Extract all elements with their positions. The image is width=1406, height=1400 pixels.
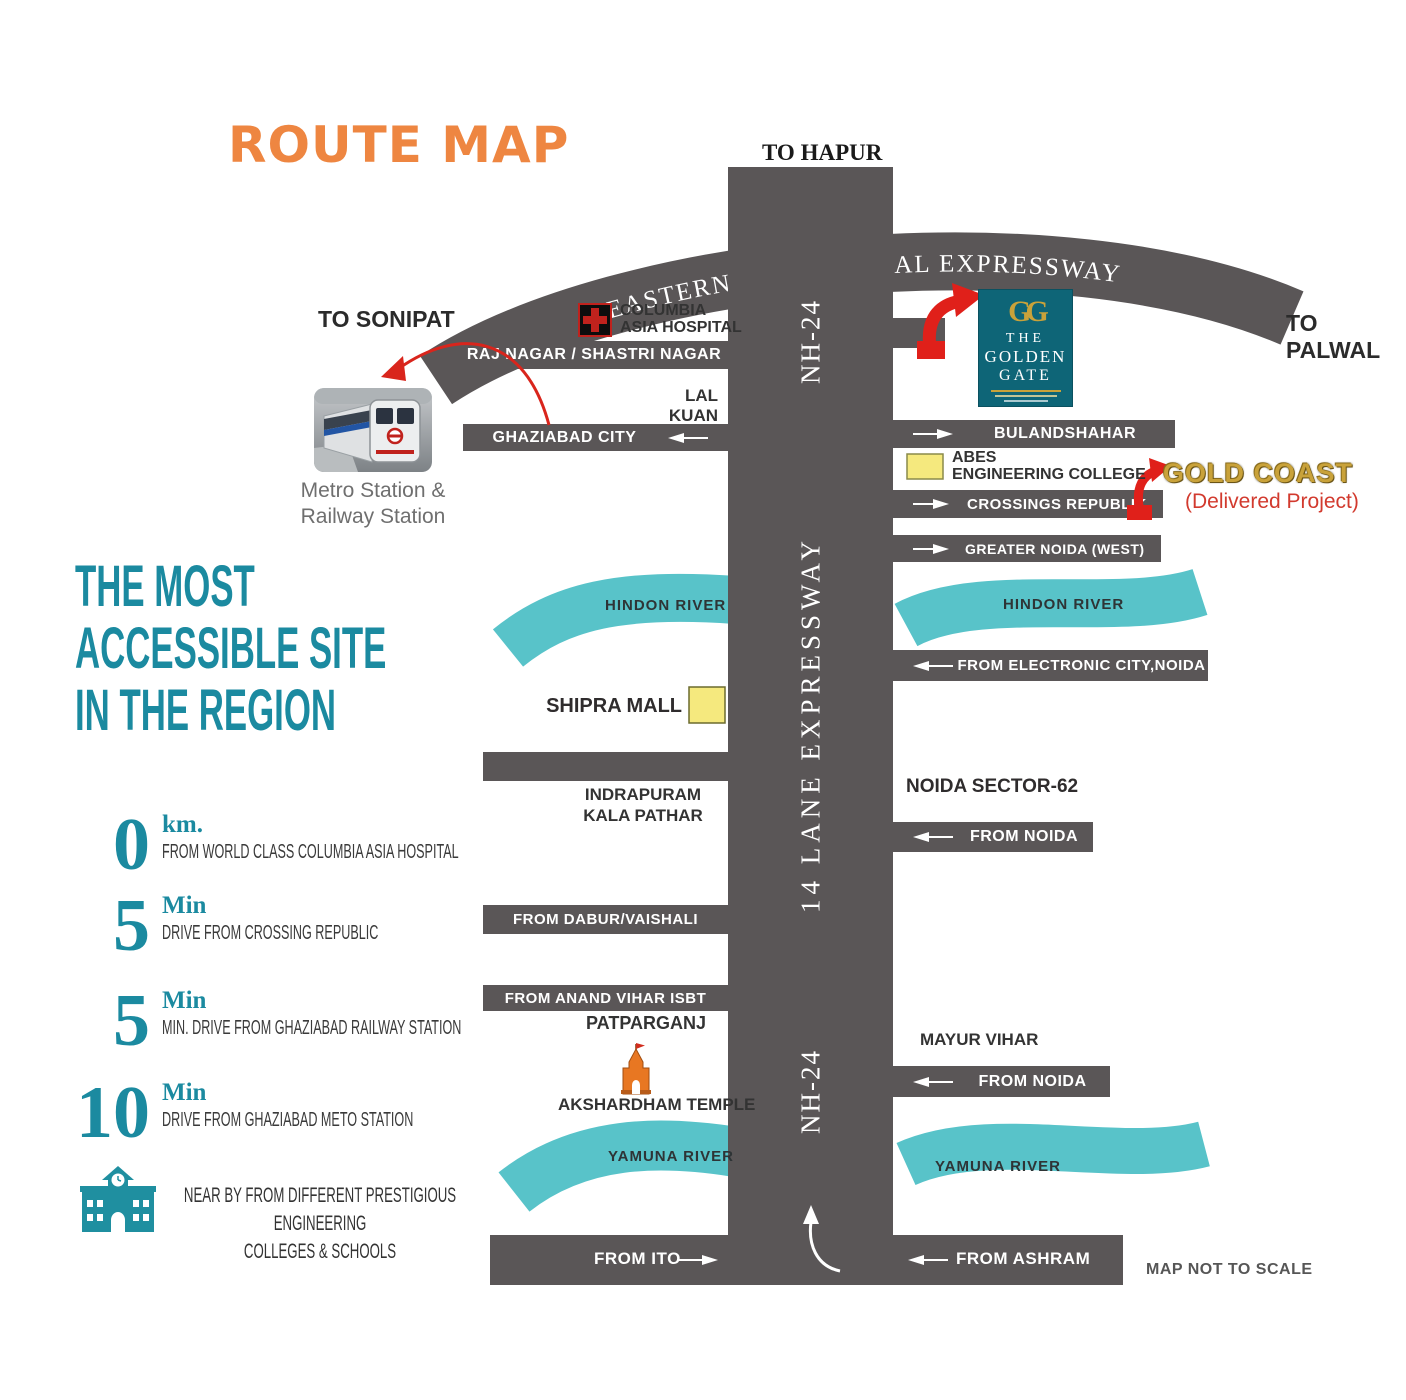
road-crossings-republik: CROSSINGS REPUBLIK	[893, 490, 1163, 518]
metro-caption-line1: Metro Station &	[300, 478, 446, 504]
road-bulandshahar-label: BULANDSHAHAR	[955, 425, 1175, 443]
golden-gate-the: THE	[1006, 331, 1045, 347]
golden-gate-monogram: GG	[1008, 297, 1043, 327]
stat-unit: km.	[162, 812, 633, 837]
road-from-noida-2-label: FROM NOIDA	[955, 1073, 1110, 1091]
metro-pointer-arrowhead	[381, 356, 406, 381]
stat-desc: MIN. DRIVE FROM GHAZIABAD RAILWAY STATIO…	[162, 1017, 461, 1040]
abes-line1: ABES	[952, 449, 996, 466]
mayur-vihar-label: MAYUR VIHAR	[920, 1030, 1038, 1050]
road-ghaziabad-city-label: GHAZIABAD CITY	[463, 429, 666, 447]
road-from-noida-2: FROM NOIDA	[893, 1066, 1110, 1097]
school-icon	[80, 1158, 156, 1236]
direction-to-palwal: TO PALWAL	[1286, 310, 1406, 364]
metro-caption-line2: Railway Station	[300, 504, 446, 530]
direction-to-sonipat: TO SONIPAT	[318, 306, 455, 333]
schools-note-line2: COLLEGES & SCHOOLS	[160, 1238, 480, 1266]
noida-sector-62-label: NOIDA SECTOR-62	[906, 776, 1078, 798]
road-indirapuram-link	[483, 752, 728, 781]
road-greater-noida-west: GREATER NOIDA (WEST)	[893, 535, 1161, 562]
arrow-left-icon	[911, 831, 955, 843]
yamuna-river-right-label: YAMUNA RIVER	[935, 1158, 1061, 1175]
road-ghaziabad-city: GHAZIABAD CITY	[463, 424, 728, 451]
akshardham-temple-label: AKSHARDHAM TEMPLE	[558, 1095, 755, 1115]
golden-gate-golden: GOLDEN	[985, 347, 1067, 367]
stat-value: 5	[76, 988, 150, 1055]
stat-desc: DRIVE FROM CROSSING REPUBLIC	[162, 922, 378, 945]
direction-to-hapur: TO HAPUR	[762, 140, 882, 166]
road-bulandshahar: BULANDSHAHAR	[893, 420, 1175, 448]
headline-block: THE MOST ACCESSIBLE SITE IN THE REGION	[75, 556, 386, 742]
from-ito-label: FROM ITO	[594, 1249, 681, 1269]
road-golden-gate-stub	[893, 318, 945, 348]
golden-gate-tagline-line2	[1004, 400, 1048, 402]
abes-line2: ENGINEERING COLLEGE	[952, 466, 1146, 483]
arrow-left-icon	[911, 1076, 955, 1088]
golden-gate-gate: GATE	[999, 367, 1052, 385]
hindon-river-right-label: HINDON RIVER	[1003, 596, 1124, 613]
stat-desc: DRIVE FROM GHAZIABAD METO STATION	[162, 1109, 413, 1132]
hindon-river-left-label: HINDON RIVER	[605, 597, 726, 614]
abes-college-marker	[906, 453, 944, 480]
stat-value: 10	[68, 1080, 150, 1147]
road-raj-nagar: RAJ NAGAR / SHASTRI NAGAR	[460, 341, 728, 369]
columbia-hospital-line1: COLUMBIA	[620, 302, 706, 319]
road-from-noida-1-label: FROM NOIDA	[955, 828, 1093, 846]
nh24-bottom-label: NH-24	[794, 1036, 828, 1148]
shipra-mall-label: SHIPRA MALL	[540, 695, 682, 718]
lal-kuan-line1: LAL	[656, 386, 718, 406]
stat-item-railway-station: 5 Min MIN. DRIVE FROM GHAZIABAD RAILWAY …	[76, 988, 637, 1055]
nh24-top-label: NH-24	[794, 286, 828, 398]
schools-note-block: NEAR BY FROM DIFFERENT PRESTIGIOUS ENGIN…	[160, 1182, 480, 1266]
headline-line2: ACCESSIBLE SITE	[75, 618, 386, 680]
stat-unit: Min	[162, 988, 637, 1013]
golden-gate-logo: GG THE GOLDEN GATE	[978, 289, 1073, 407]
stat-item-metro-station: 10 Min DRIVE FROM GHAZIABAD METO STATION	[68, 1080, 561, 1147]
from-ashram-label: FROM ASHRAM	[956, 1249, 1090, 1269]
schools-note-line1: NEAR BY FROM DIFFERENT PRESTIGIOUS ENGIN…	[160, 1182, 480, 1238]
stat-item-crossing-republic: 5 Min DRIVE FROM CROSSING REPUBLIC	[76, 893, 505, 960]
headline-line3: IN THE REGION	[75, 680, 386, 742]
route-map-poster: EASTERN PHERIPHERAL EXPRESSWAY RAJ NAGAR…	[0, 0, 1406, 1400]
road-raj-nagar-label: RAJ NAGAR / SHASTRI NAGAR	[460, 346, 728, 364]
indirapuram-line1: INDRAPURAM	[570, 784, 716, 805]
stat-item-hospital: 0 km. FROM WORLD CLASS COLUMBIA ASIA HOS…	[76, 812, 633, 879]
columbia-hospital-line2: ASIA HOSPITAL	[620, 319, 742, 336]
stat-value: 5	[76, 893, 150, 960]
shipra-mall-marker	[688, 686, 726, 724]
road-from-dabur-label: FROM DABUR/VAISHALI	[483, 911, 728, 928]
road-from-dabur: FROM DABUR/VAISHALI	[483, 905, 728, 934]
arrow-right-icon	[676, 1254, 720, 1266]
arrow-right-icon	[911, 498, 951, 510]
lal-kuan-line2: KUAN	[656, 406, 718, 426]
arrow-right-icon	[911, 428, 955, 440]
stat-unit: Min	[162, 893, 505, 918]
stat-value: 0	[76, 812, 150, 879]
stat-unit: Min	[162, 1080, 561, 1105]
arrow-left-icon	[911, 660, 955, 672]
arrow-left-icon	[906, 1254, 950, 1266]
arrow-left-icon	[666, 432, 710, 444]
scale-note: MAP NOT TO SCALE	[1146, 1261, 1313, 1279]
stat-desc: FROM WORLD CLASS COLUMBIA ASIA HOSPITAL	[162, 841, 459, 864]
golden-gate-divider	[991, 390, 1061, 392]
lane14-expressway-label: 14 LANE EXPRESSWAY	[794, 512, 828, 936]
road-from-electronic-city: FROM ELECTRONIC CITY,NOIDA	[893, 650, 1208, 681]
road-from-electronic-city-label: FROM ELECTRONIC CITY,NOIDA	[955, 657, 1208, 674]
metro-station-photo	[314, 388, 432, 472]
gold-coast-logo: GOLD COAST	[1163, 458, 1353, 489]
golden-gate-tagline-line	[995, 395, 1057, 397]
headline-line1: THE MOST	[75, 556, 386, 618]
page-title: ROUTE MAP	[228, 116, 569, 174]
road-greater-noida-west-label: GREATER NOIDA (WEST)	[951, 541, 1161, 557]
gold-coast-subtitle: (Delivered Project)	[1185, 490, 1359, 514]
hospital-icon	[578, 303, 612, 337]
yamuna-river-left-label: YAMUNA RIVER	[608, 1148, 734, 1165]
road-crossings-republik-label: CROSSINGS REPUBLIK	[951, 496, 1163, 513]
arrow-right-icon	[911, 543, 951, 555]
road-from-noida-1: FROM NOIDA	[893, 822, 1093, 852]
